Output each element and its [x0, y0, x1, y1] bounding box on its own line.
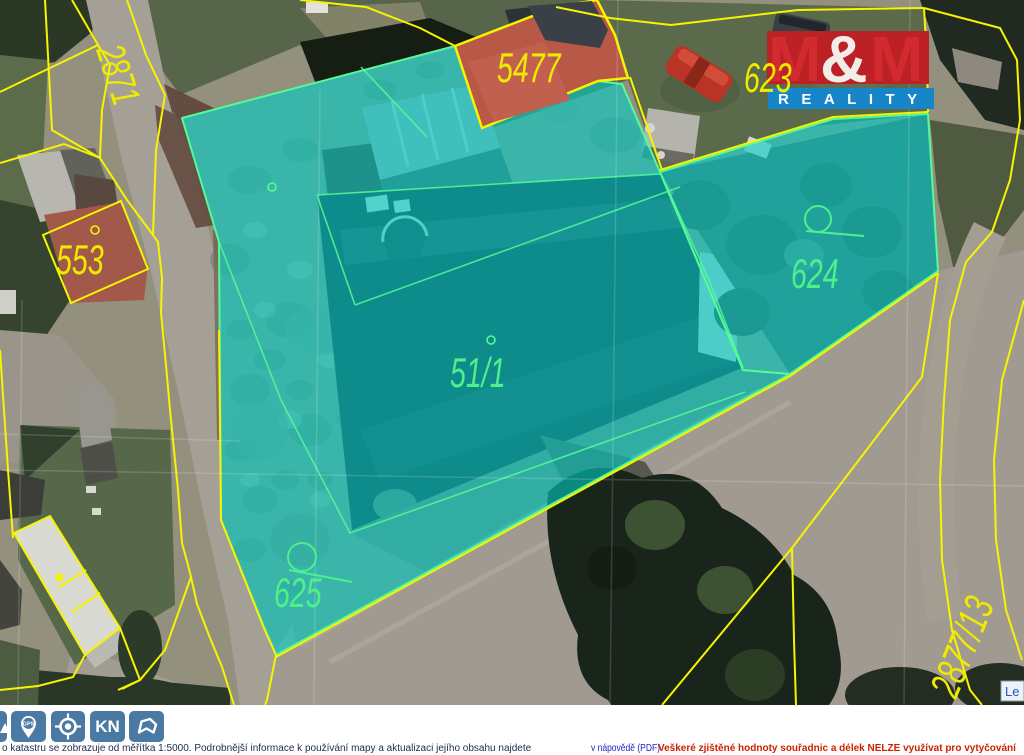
svg-text:553: 553	[56, 235, 104, 283]
svg-text:5477: 5477	[497, 43, 562, 91]
svg-text:&: &	[820, 22, 868, 96]
svg-text:M: M	[870, 23, 923, 95]
svg-text:REALITY: REALITY	[778, 91, 930, 108]
svg-text:51/1: 51/1	[450, 348, 506, 396]
svg-text:624: 624	[791, 249, 839, 297]
svg-text:Le: Le	[1005, 684, 1019, 699]
svg-text:623: 623	[744, 53, 792, 101]
svg-text:625: 625	[274, 568, 322, 616]
svg-text:GPS: GPS	[23, 722, 35, 728]
svg-text:KN: KN	[95, 717, 120, 736]
